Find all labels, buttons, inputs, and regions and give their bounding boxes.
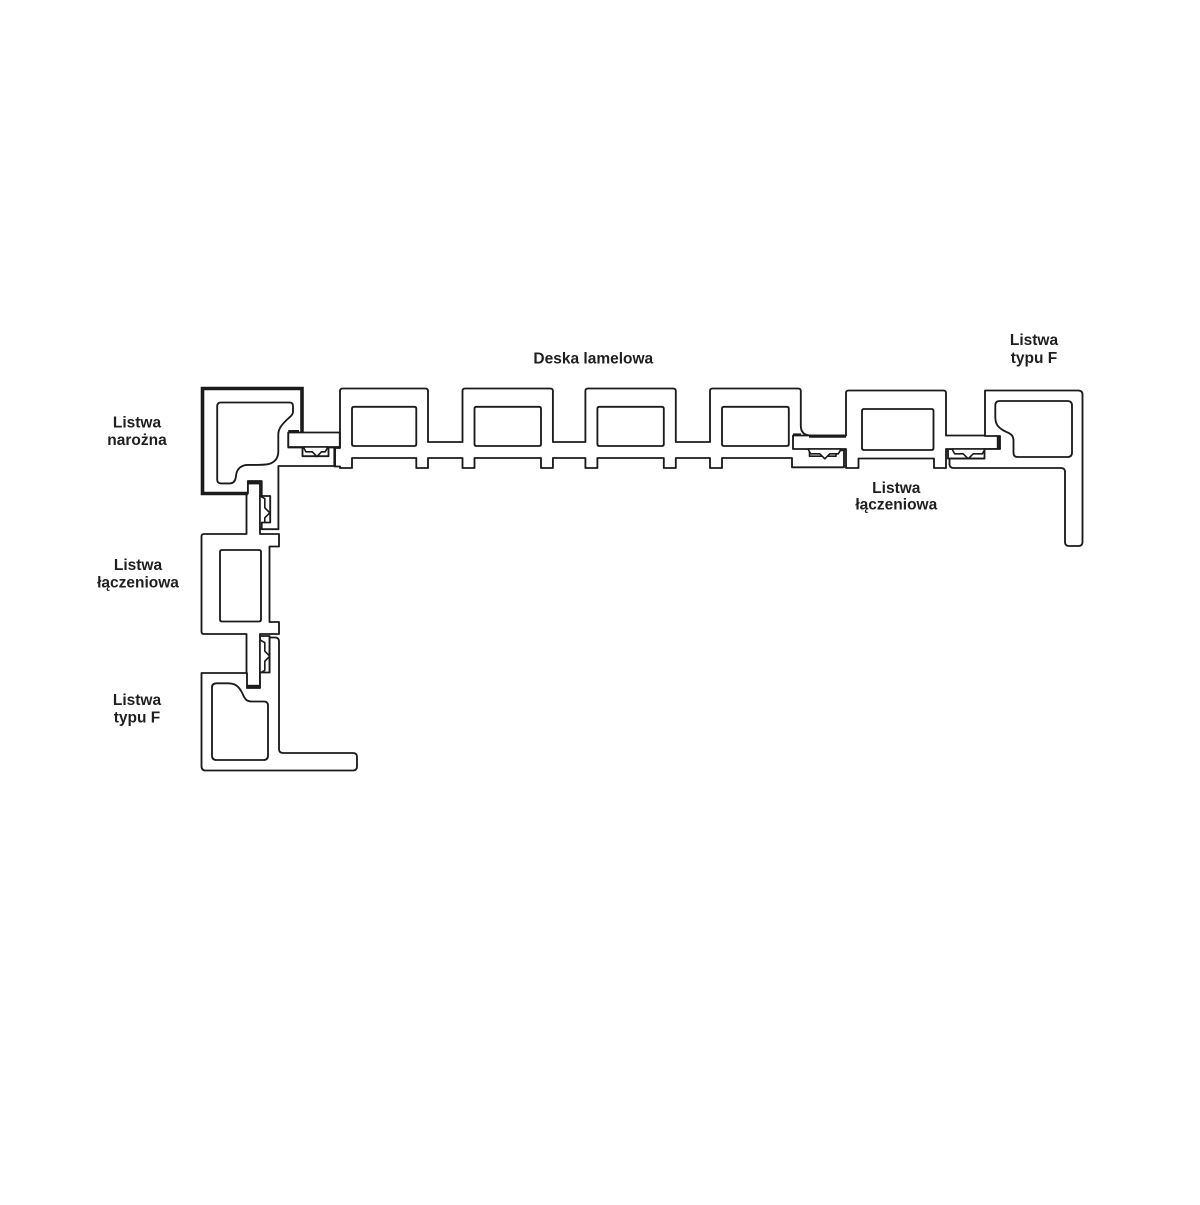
- svg-text:łączeniowa: łączeniowa: [855, 497, 937, 514]
- svg-text:typu F: typu F: [114, 710, 161, 727]
- svg-text:Deska lamelowa: Deska lamelowa: [533, 351, 653, 368]
- svg-text:Listwa: Listwa: [114, 557, 163, 574]
- svg-text:Listwa: Listwa: [1010, 332, 1059, 349]
- svg-text:Listwa: Listwa: [872, 480, 921, 497]
- svg-text:łączeniowa: łączeniowa: [97, 575, 179, 592]
- svg-text:narożna: narożna: [107, 432, 167, 449]
- svg-text:Listwa: Listwa: [113, 692, 162, 709]
- svg-text:typu F: typu F: [1011, 350, 1058, 367]
- svg-text:Listwa: Listwa: [113, 415, 162, 432]
